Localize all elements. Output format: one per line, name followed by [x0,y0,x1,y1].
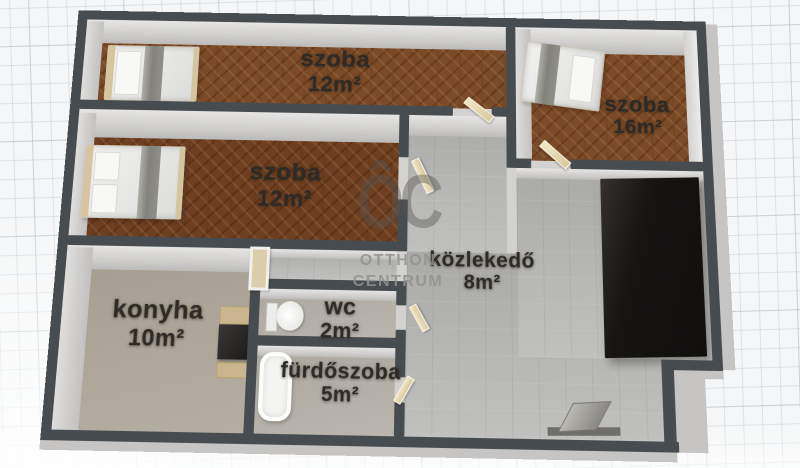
kitchen-counter [216,361,250,378]
room-label-szoba-middle: szoba 12m² [200,158,370,212]
bed [80,145,186,220]
bed-pillow [93,152,121,181]
bed-pillow [90,184,118,214]
room-label-furdoszoba: fürdőszoba 5m² [252,358,428,409]
room-name: szoba [554,92,720,119]
room-name: szoba [201,158,369,187]
room-name: közlekedő [397,247,568,273]
bed [104,45,200,102]
room-name: konyha [71,295,245,326]
wall-segment [506,27,516,115]
wardrobe [600,177,707,358]
floorplan-3d: szoba 12m² szoba 16m² szoba 12m² közleke… [40,10,727,453]
room-name: szoba [253,46,417,74]
floorplan-scene: szoba 12m² szoba 16m² szoba 12m² közleke… [0,0,800,468]
room-area: 12m² [252,71,417,97]
room-area: 2m² [253,318,427,345]
room-label-wc: wc 2m² [253,292,427,345]
bed-blanket [136,146,161,219]
wall-outer-face [674,370,709,453]
wall-face [77,109,399,143]
wall-segment [507,158,532,168]
room-label-kozlekedo: közlekedő 8m² [396,247,568,295]
wall-face [66,245,253,272]
room-label-konyha: konyha 10m² [69,295,245,352]
room-area: 10m² [69,323,244,352]
bed-pillow [114,51,142,95]
bed-blanket [141,46,164,101]
room-label-szoba-right: szoba 16m² [554,92,721,140]
room-area: 16m² [555,115,721,140]
room-area: 5m² [252,382,428,409]
room-name: fürdőszoba [253,358,428,385]
wall-outer-face [668,370,724,379]
door-konyha-frame [248,246,270,290]
wall-segment [399,115,409,158]
room-label-szoba-top: szoba 12m² [252,46,417,97]
room-name: wc [254,292,427,321]
room-area: 8m² [396,270,568,295]
room-area: 12m² [200,185,369,213]
